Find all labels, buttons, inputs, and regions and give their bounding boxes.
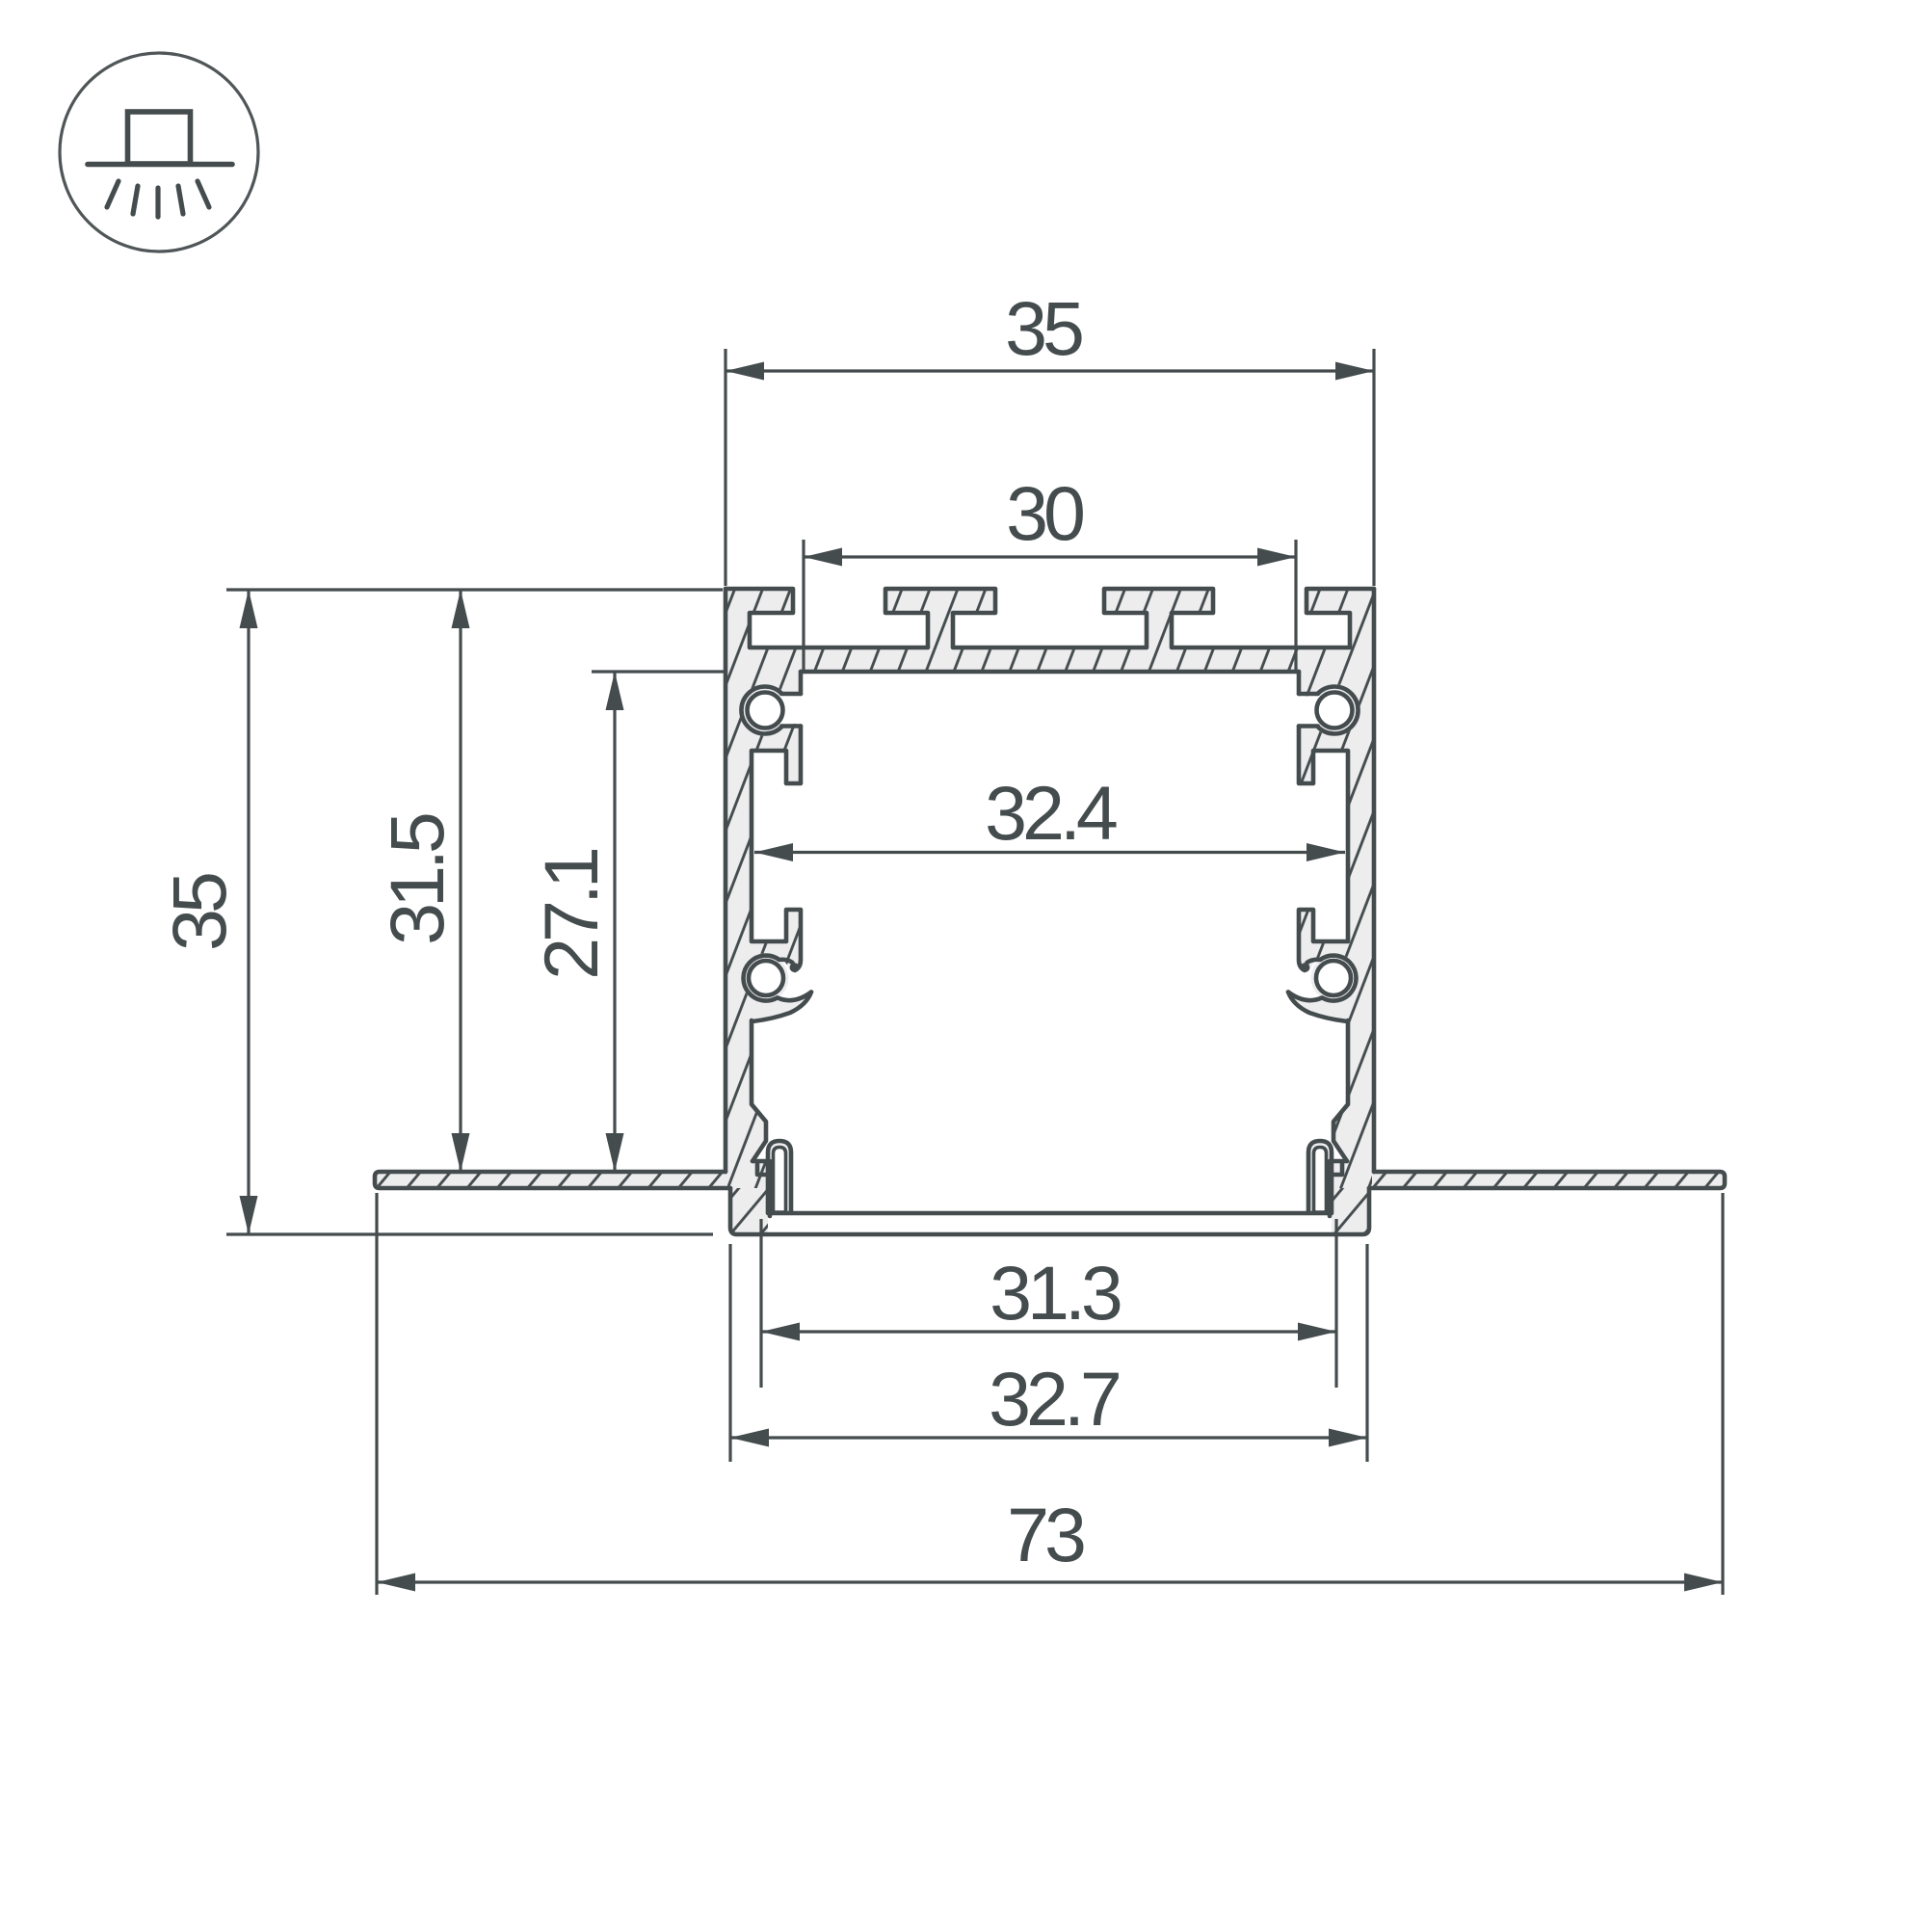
svg-text:35: 35 (1005, 285, 1082, 371)
svg-text:27.1: 27.1 (528, 849, 614, 980)
svg-text:73: 73 (1007, 1492, 1084, 1577)
svg-text:30: 30 (1006, 470, 1083, 556)
svg-text:32.4: 32.4 (985, 770, 1117, 856)
svg-text:32.7: 32.7 (989, 1356, 1119, 1442)
svg-text:31.5: 31.5 (374, 814, 460, 945)
svg-text:35: 35 (156, 874, 242, 951)
svg-text:31.3: 31.3 (990, 1250, 1121, 1336)
